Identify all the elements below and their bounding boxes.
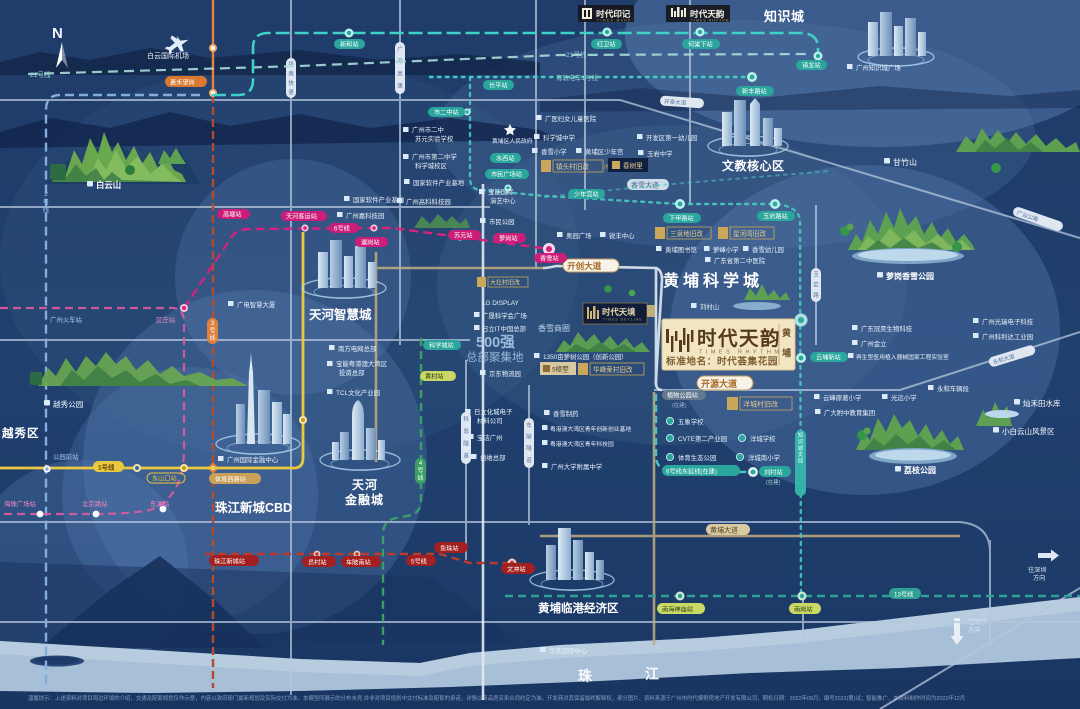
svg-text:长平站: 长平站	[489, 82, 508, 90]
svg-text:温馨提示：上述资料对项目周边环境的介绍，交通及配套规划仅作示: 温馨提示：上述资料对项目周边环境的介绍，交通及配套规划仅作示意，内容以政府部门最…	[28, 694, 965, 702]
svg-text:锐丰中心: 锐丰中心	[609, 231, 635, 240]
svg-text:洋城村旧改: 洋城村旧改	[743, 400, 778, 409]
svg-text:TCL文化产业园: TCL文化产业园	[336, 388, 380, 397]
svg-text:CVTE第二产业园: CVTE第二产业园	[678, 434, 727, 443]
svg-text:TIMES RHYTHM: TIMES RHYTHM	[699, 350, 782, 356]
svg-text:嘉禾望岗: 嘉禾望岗	[170, 78, 195, 86]
svg-text:投资总部: 投资总部	[339, 368, 365, 377]
svg-text:珠: 珠	[578, 668, 593, 684]
svg-text:宝洁广州: 宝洁广州	[477, 433, 503, 442]
svg-text:萝岗站: 萝岗站	[499, 235, 518, 243]
svg-text:广州科利达工业园: 广州科利达工业园	[982, 332, 1033, 341]
svg-text:广大附中教育集团: 广大附中教育集团	[824, 408, 875, 417]
svg-text:方向: 方向	[1033, 574, 1045, 582]
svg-text:往深圳: 往深圳	[1028, 566, 1047, 574]
svg-text:光远小学: 光远小学	[891, 393, 917, 402]
svg-text:科学城中学: 科学城中学	[543, 133, 576, 142]
svg-text:广州金立: 广州金立	[861, 339, 887, 348]
svg-text:500强: 500强	[476, 334, 515, 351]
svg-text:下甲路站: 下甲路站	[669, 215, 694, 223]
svg-text:21号线: 21号线	[566, 50, 587, 59]
svg-text:日立IT中国总部: 日立IT中国总部	[482, 324, 527, 333]
svg-text:宝能国际: 宝能国际	[488, 187, 514, 196]
svg-text:文冲站: 文冲站	[507, 565, 526, 573]
svg-text:开源大道: 开源大道	[701, 378, 737, 389]
svg-text:日立化城电子: 日立化城电子	[474, 407, 513, 416]
svg-text:广州光瑞电子科技: 广州光瑞电子科技	[982, 317, 1034, 326]
svg-text:水西站: 水西站	[496, 155, 515, 163]
svg-text:荔枝公园: 荔枝公园	[903, 465, 936, 475]
svg-text:N: N	[52, 25, 63, 42]
svg-text:灿禾田水库: 灿禾田水库	[1023, 398, 1061, 408]
svg-text:再生型医用植入器械国家工程实验室: 再生型医用植入器械国家工程实验室	[856, 353, 949, 361]
svg-text:知识城: 知识城	[764, 9, 805, 24]
svg-text:暹岗站: 暹岗站	[361, 239, 380, 247]
svg-text:越秀区: 越秀区	[1, 426, 40, 440]
svg-text:北京路站: 北京路站	[82, 499, 108, 508]
svg-text:香雪商圈: 香雪商圈	[538, 323, 570, 333]
svg-text:大壮村旧改: 大壮村旧改	[490, 279, 520, 287]
svg-text:华峰荣村旧改: 华峰荣村旧改	[593, 365, 633, 374]
svg-text:萝岗香雪公园: 萝岗香雪公园	[886, 271, 934, 281]
svg-text:市民公园: 市民公园	[489, 217, 515, 226]
svg-text:方向: 方向	[968, 626, 980, 634]
svg-text:三泉地旧改: 三泉地旧改	[670, 229, 703, 238]
svg-text:珠江新城CBD: 珠江新城CBD	[215, 500, 292, 515]
svg-text:时代天韵: 时代天韵	[697, 327, 781, 350]
svg-text:材料公司: 材料公司	[477, 416, 503, 425]
svg-text:鱼珠站: 鱼珠站	[440, 544, 459, 552]
svg-text:广州国际金融中心: 广州国际金融中心	[227, 455, 279, 464]
svg-text:(在建): (在建)	[672, 401, 687, 409]
svg-text:苏元实验学校: 苏元实验学校	[415, 134, 454, 143]
svg-text:(在建): (在建)	[766, 478, 781, 486]
svg-text:珠江新城站: 珠江新城站	[214, 557, 245, 565]
svg-text:公园前站: 公园前站	[53, 452, 79, 461]
svg-text:车陂南站: 车陂南站	[346, 558, 371, 566]
svg-text:市民广场站: 市民广场站	[491, 171, 522, 179]
svg-text:广东省第二中医院: 广东省第二中医院	[714, 256, 766, 265]
svg-text:南海神庙站: 南海神庙站	[662, 605, 693, 613]
svg-text:黄埔科学城: 黄埔科学城	[663, 271, 763, 290]
svg-text:文教核心区: 文教核心区	[722, 158, 785, 173]
svg-text:广州大学附属中学: 广州大学附属中学	[551, 462, 603, 471]
svg-text:镇龙站: 镇龙站	[802, 62, 821, 70]
svg-text:洋城南小学: 洋城南小学	[748, 453, 781, 462]
svg-text:开创大道: 开创大道	[567, 260, 602, 271]
svg-text:TIMES RHYTHM: TIMES RHYTHM	[691, 19, 730, 23]
svg-text:越秀公园: 越秀公园	[53, 399, 83, 409]
svg-text:演艺中心: 演艺中心	[490, 196, 516, 205]
svg-text:天河客运站: 天河客运站	[286, 213, 317, 221]
svg-text:红卫站: 红卫站	[597, 41, 616, 49]
svg-text:玉岩中学: 玉岩中学	[647, 149, 673, 158]
svg-text:知识城支线: 知识城支线	[798, 431, 804, 465]
svg-text:玉岩路站: 玉岩路站	[763, 213, 788, 221]
svg-text:天河: 天河	[352, 477, 378, 492]
svg-text:高塘站: 高塘站	[223, 211, 242, 219]
svg-text:刘村站: 刘村站	[764, 468, 783, 476]
svg-text:五象学校: 五象学校	[678, 417, 704, 426]
svg-text:黄: 黄	[782, 327, 791, 338]
svg-text:1350亩萝树公园（创新公园）: 1350亩萝树公园（创新公园）	[543, 352, 628, 361]
svg-text:洋城学校: 洋城学校	[750, 434, 776, 443]
svg-text:广医妇女儿童医院: 广医妇女儿童医院	[545, 114, 597, 123]
svg-text:广州高科科技园: 广州高科科技园	[406, 197, 451, 206]
svg-text:奥园广场: 奥园广场	[566, 231, 592, 240]
svg-text:香雪站: 香雪站	[540, 255, 559, 263]
svg-text:新和站: 新和站	[340, 41, 359, 49]
svg-text:员村站: 员村站	[308, 558, 327, 566]
svg-text:TIMES SKYLINE: TIMES SKYLINE	[603, 318, 643, 322]
svg-text:13号线: 13号线	[894, 590, 913, 598]
svg-text:科学城站: 科学城站	[429, 342, 454, 350]
svg-text:广晟科学会广场: 广晟科学会广场	[482, 311, 527, 320]
svg-text:时代天韵: 时代天韵	[690, 8, 725, 19]
svg-text:广东冠昊生物科技: 广东冠昊生物科技	[861, 324, 913, 333]
svg-text:广州市二中: 广州市二中	[412, 125, 444, 134]
svg-text:LG DISPLAY: LG DISPLAY	[482, 300, 520, 307]
svg-text:甘竹山: 甘竹山	[893, 157, 917, 167]
svg-text:永和车辆段: 永和车辆段	[937, 384, 970, 393]
svg-text:黄埔区人民政府: 黄埔区人民政府	[492, 137, 533, 145]
svg-text:宝能粤港澳大湾区: 宝能粤港澳大湾区	[336, 359, 388, 368]
svg-text:市二中站: 市二中站	[434, 109, 459, 117]
svg-text:6号线东延线(在建): 6号线东延线(在建)	[666, 467, 717, 475]
svg-text:黄埔大道: 黄埔大道	[710, 526, 738, 535]
svg-text:萝峰小学: 萝峰小学	[713, 245, 739, 254]
svg-text:6号线: 6号线	[334, 225, 350, 233]
svg-text:1号线: 1号线	[98, 462, 115, 471]
svg-text:21号线: 21号线	[30, 70, 51, 79]
svg-text:广州火车站: 广州火车站	[50, 315, 83, 324]
svg-text:时代天境: 时代天境	[602, 307, 636, 317]
svg-text:开发区第一幼儿园: 开发区第一幼儿园	[646, 133, 697, 142]
svg-text:华美国际中心: 华美国际中心	[549, 646, 588, 655]
svg-text:植物公园站: 植物公园站	[667, 392, 698, 400]
svg-text:黄埔临港经济区: 黄埔临港经济区	[538, 601, 619, 615]
svg-text:国家软件产业基地: 国家软件产业基地	[353, 195, 405, 204]
svg-text:京东物流园: 京东物流园	[489, 369, 521, 378]
svg-text:何棠下站: 何棠下站	[688, 41, 713, 49]
svg-text:星河湾旧改: 星河湾旧改	[733, 229, 766, 238]
svg-text:新丰路站: 新丰路站	[742, 88, 767, 96]
svg-text:总部聚集地: 总部聚集地	[466, 350, 524, 364]
svg-text:TIMES MARK: TIMES MARK	[597, 19, 632, 23]
svg-text:国家软件产业基地: 国家软件产业基地	[413, 178, 465, 187]
svg-text:广州嘉科技园: 广州嘉科技园	[346, 211, 384, 220]
svg-text:5号线: 5号线	[411, 557, 427, 565]
svg-text:金融城: 金融城	[344, 492, 384, 507]
svg-text:时代印记: 时代印记	[596, 8, 631, 19]
svg-text:少年宫站: 少年宫站	[574, 191, 599, 199]
svg-text:粤港澳大湾区青年创新创业基地: 粤港澳大湾区青年创新创业基地	[550, 425, 631, 433]
svg-text:广州市第二中学: 广州市第二中学	[412, 152, 457, 161]
svg-text:玉岩路: 玉岩路	[813, 271, 819, 299]
svg-text:云埔新站: 云埔新站	[816, 354, 841, 362]
svg-text:黄埔区少年宫: 黄埔区少年宫	[585, 147, 623, 156]
svg-text:东山口站: 东山口站	[152, 475, 177, 483]
svg-text:春树里: 春树里	[623, 161, 643, 170]
svg-text:白云国际机场: 白云国际机场	[147, 51, 189, 60]
svg-text:香雪小学: 香雪小学	[541, 147, 567, 156]
svg-text:香雪幼儿园: 香雪幼儿园	[752, 245, 784, 254]
svg-text:刘村山: 刘村山	[700, 302, 719, 311]
svg-text:镇头村旧改: 镇头村旧改	[556, 162, 589, 171]
svg-text:体育西路站: 体育西路站	[215, 475, 246, 483]
svg-text:云峰原著小学: 云峰原著小学	[823, 393, 862, 402]
svg-text:科学城校区: 科学城校区	[415, 161, 448, 170]
svg-text:区庄站: 区庄站	[156, 315, 176, 324]
svg-text:有轨电车1号线: 有轨电车1号线	[556, 73, 599, 82]
svg-text:创维总部: 创维总部	[480, 453, 506, 462]
svg-text:广州知识城广场: 广州知识城广场	[856, 63, 901, 72]
svg-text:黄埔图书馆: 黄埔图书馆	[665, 245, 697, 254]
svg-text:白云山: 白云山	[96, 180, 121, 190]
svg-text:东湖站: 东湖站	[150, 499, 170, 508]
svg-text:天河智慧城: 天河智慧城	[309, 307, 372, 322]
svg-text:5樟墅: 5樟墅	[552, 365, 569, 374]
svg-text:埔: 埔	[782, 347, 791, 358]
svg-text:标准地名：时代荟集花园: 标准地名：时代荟集花园	[665, 356, 778, 368]
svg-text:粤港澳大湾区青年科技园: 粤港澳大湾区青年科技园	[550, 440, 614, 448]
svg-text:黄村站: 黄村站	[425, 373, 444, 381]
svg-text:体育生态公园: 体育生态公园	[678, 453, 716, 462]
svg-text:小白云山风景区: 小白云山风景区	[1002, 426, 1055, 436]
svg-text:广电智慧大厦: 广电智慧大厦	[237, 300, 276, 309]
svg-text:苏元站: 苏元站	[454, 232, 473, 240]
svg-text:南岗站: 南岗站	[794, 605, 813, 613]
svg-text:香雪制药: 香雪制药	[553, 409, 579, 418]
svg-text:海珠广场站: 海珠广场站	[4, 499, 37, 508]
svg-text:江: 江	[645, 666, 659, 682]
svg-text:南方电网总部: 南方电网总部	[338, 344, 377, 353]
